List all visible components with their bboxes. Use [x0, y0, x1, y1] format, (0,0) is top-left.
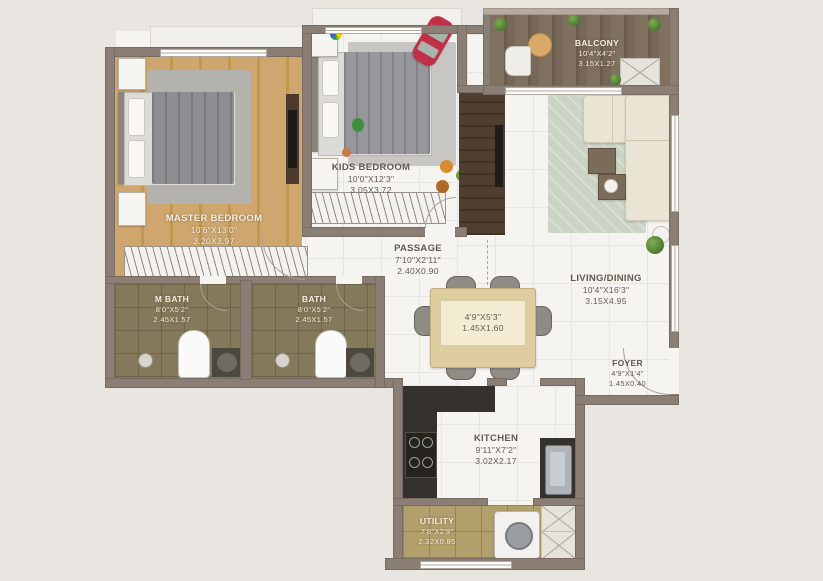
sofa-right [625, 95, 671, 221]
room-dims-m: 2.45X1.57 [268, 315, 360, 325]
room-dims-m: 3.02X2.17 [440, 456, 552, 467]
room-name: PASSAGE [362, 243, 474, 255]
wall [457, 25, 467, 93]
room-label-bath: BATH 8'0"X5'2" 2.45X1.57 [268, 290, 360, 328]
room-label-balcony: BALCONY 10'4"X4'2" 3.15X1.27 [548, 32, 646, 74]
sofa-cushion-seam [612, 95, 613, 141]
dining-dims-m: 1.45X1.60 [441, 323, 525, 334]
washbasin [217, 353, 237, 372]
tv-icon [288, 110, 297, 168]
shower-head [275, 353, 290, 368]
balcony-chair [505, 46, 531, 76]
decor-bowl [604, 179, 618, 193]
kids-bed-blanket [344, 52, 430, 154]
room-dims-ft: 4'9"X1'4" [585, 369, 670, 379]
room-label-kitchen: KITCHEN 9'11"X7'2" 3.02X2.17 [440, 428, 552, 472]
room-dims-ft: 10'6"X13'0" [138, 225, 290, 236]
door-gap [425, 227, 455, 237]
toy [436, 180, 449, 193]
room-dims-ft: 8'0"X5'2" [268, 305, 360, 315]
toy [352, 118, 364, 132]
window [671, 115, 679, 212]
room-name: M BATH [126, 294, 218, 305]
room-dims-m: 3.15X1.27 [548, 59, 646, 69]
room-name: UTILITY [397, 516, 477, 527]
washing-machine-drum [505, 522, 533, 550]
washing-machine [494, 511, 540, 559]
toy [342, 148, 351, 157]
room-label-passage: PASSAGE 7'10"X2'11" 2.40X0.90 [362, 240, 474, 280]
burner-icon [422, 437, 433, 448]
wall [240, 280, 252, 380]
room-dims-m: 2.45X1.57 [126, 315, 218, 325]
room-name: KIDS BEDROOM [308, 162, 434, 174]
wall [487, 378, 507, 386]
plant [648, 18, 661, 31]
floor-niche [467, 34, 483, 85]
room-name: BATH [268, 294, 360, 305]
nightstand [118, 58, 146, 90]
dining-dims-ft: 4'9"X5'3" [441, 312, 525, 323]
wall [105, 47, 115, 388]
room-dims-ft: 7'8"X2'9" [397, 527, 477, 537]
wall [393, 498, 488, 506]
tv-icon [495, 125, 503, 187]
burner-icon [409, 457, 420, 468]
plant [494, 18, 507, 31]
wall [375, 276, 385, 388]
door-gap [200, 276, 226, 284]
sofa-cushion-seam [625, 140, 669, 141]
window [671, 245, 679, 332]
room-name: FOYER [585, 358, 670, 369]
window [160, 49, 267, 57]
opening-dashed-line [487, 240, 488, 285]
room-name: BALCONY [548, 38, 646, 49]
washbasin [350, 353, 370, 372]
plant [568, 14, 580, 26]
pillow [322, 60, 339, 96]
room-dims-m: 3.20X3.97 [138, 236, 290, 247]
pillow [128, 140, 145, 178]
room-name: KITCHEN [440, 433, 552, 445]
room-label-living-dining: LIVING/DINING 10'4"X16'3" 3.15X4.95 [552, 268, 660, 312]
room-label-master-bedroom: MASTER BEDROOM 10'6"X13'0" 3.20X3.97 [138, 210, 290, 250]
gas-stove [405, 432, 437, 478]
toilet [178, 330, 210, 378]
shaft-tile [541, 531, 577, 560]
room-dims-ft: 10'4"X4'2" [548, 49, 646, 59]
kitchen-counter-top [403, 386, 495, 412]
room-dims-m: 3.15X4.95 [552, 296, 660, 307]
room-label-utility: UTILITY 7'8"X2'9" 2.32X0.85 [397, 510, 477, 552]
burner-icon [409, 437, 420, 448]
toy-car-window [417, 40, 439, 59]
room-label-foyer: FOYER 4'9"X1'4" 1.45X0.40 [585, 352, 670, 394]
wall [575, 378, 585, 570]
sink-basin [550, 452, 565, 486]
window [325, 27, 422, 34]
burner-icon [422, 457, 433, 468]
room-dims-ft: 8'0"X5'2" [126, 305, 218, 315]
shower-head [138, 353, 153, 368]
wall [533, 498, 585, 506]
coffee-table [588, 148, 616, 174]
wall [483, 8, 491, 93]
plant [610, 74, 621, 85]
wall [302, 25, 312, 237]
pillow [128, 98, 145, 136]
window [420, 561, 512, 569]
room-dims-ft: 10'0"X12'3" [308, 174, 434, 185]
balcony-slider-window [505, 87, 622, 95]
toy [440, 160, 453, 173]
pillow [322, 102, 339, 138]
room-name: MASTER BEDROOM [138, 213, 290, 225]
shaft-tile [541, 505, 577, 533]
exterior-ledge [150, 26, 304, 49]
room-dims-m: 1.45X0.40 [585, 379, 670, 389]
room-dims-ft: 7'10"X2'11" [362, 255, 474, 266]
floor-plan: 4'9"X5'3" 1.45X1.60 [0, 0, 823, 581]
main-door-gap [669, 348, 679, 394]
wall [575, 395, 679, 405]
room-dims-m: 3.05X3.72 [308, 185, 434, 196]
room-dims-m: 2.40X0.90 [362, 266, 474, 277]
room-label-kids-bedroom: KIDS BEDROOM 10'0"X12'3" 3.05X3.72 [308, 160, 434, 198]
room-name: LIVING/DINING [552, 273, 660, 285]
dining-chair [534, 306, 552, 336]
master-bed-blanket [152, 92, 234, 184]
room-dims-ft: 10'4"X16'3" [552, 285, 660, 296]
plant [646, 236, 664, 254]
room-dims-ft: 9'11"X7'2" [440, 445, 552, 456]
dining-table-label: 4'9"X5'3" 1.45X1.60 [440, 300, 526, 346]
balcony-railing [483, 8, 679, 15]
room-dims-m: 2.32X0.85 [397, 537, 477, 547]
toilet [315, 330, 347, 378]
door-gap [336, 276, 362, 284]
room-label-m-bath: M BATH 8'0"X5'2" 2.45X1.57 [126, 290, 218, 328]
